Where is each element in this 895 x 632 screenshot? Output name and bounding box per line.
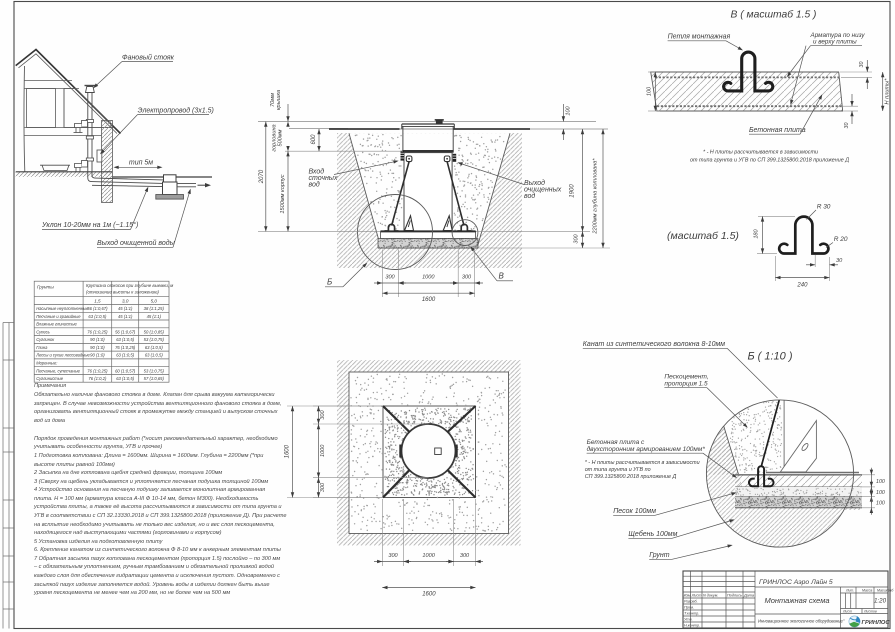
svg-text:Насыпные неуплотненные: Насыпные неуплотненные — [36, 306, 89, 311]
svg-text:R 30: R 30 — [817, 204, 831, 211]
svg-text:от типа грунта и УГВ по: от типа грунта и УГВ по — [585, 467, 651, 473]
svg-text:100: 100 — [566, 105, 572, 115]
svg-text:76 (1:0,25): 76 (1:0,25) — [87, 368, 108, 373]
svg-text:600: 600 — [311, 134, 317, 145]
svg-text:180: 180 — [754, 228, 760, 238]
svg-text:Суглинок: Суглинок — [36, 337, 55, 342]
svg-text:В: В — [499, 272, 505, 281]
svg-text:300: 300 — [460, 553, 470, 559]
svg-text:300: 300 — [320, 409, 326, 419]
svg-text:45 (1:1): 45 (1:1) — [118, 306, 133, 311]
svg-text:N докум.: N докум. — [703, 594, 718, 598]
svg-text:1600: 1600 — [422, 297, 436, 303]
svg-text:двухсторонним армированием 100: двухсторонним армированием 100мм* — [587, 445, 706, 453]
svg-text:Влажные глинистые: Влажные глинистые — [36, 322, 77, 327]
svg-text:1:20: 1:20 — [874, 598, 887, 605]
svg-text:ГРИНЛОС: ГРИНЛОС — [862, 620, 891, 626]
svg-text:30: 30 — [844, 123, 850, 129]
svg-text:Песчаные, супесчаные: Песчаные, супесчаные — [36, 368, 80, 373]
svg-text:1500мм корпус: 1500мм корпус — [280, 174, 286, 213]
svg-text:Песчаные и гравийные: Песчаные и гравийные — [36, 314, 81, 319]
svg-text:Песок 100мм: Песок 100мм — [613, 508, 656, 515]
svg-text:Т.контр.: Т.контр. — [684, 612, 699, 616]
svg-text:45 (1:1): 45 (1:1) — [118, 314, 133, 319]
svg-text:300: 300 — [462, 274, 472, 280]
svg-text:100: 100 — [876, 490, 885, 496]
svg-text:Щебень 100мм: Щебень 100мм — [628, 530, 677, 538]
svg-text:38 (1:1,25): 38 (1:1,25) — [144, 306, 165, 311]
svg-text:вод: вод — [309, 181, 320, 189]
svg-text:Монтажная схема: Монтажная схема — [764, 596, 829, 605]
svg-text:300: 300 — [574, 233, 580, 243]
svg-text:100: 100 — [876, 501, 885, 507]
svg-text:30: 30 — [836, 258, 843, 264]
svg-text:300: 300 — [388, 553, 398, 559]
svg-text:* - Н плиты рассчитывается в: * - Н плиты рассчитывается в зависимости — [703, 150, 818, 156]
svg-text:* - Н плиты рассчитывается в з: * - Н плиты рассчитывается в зависимости — [585, 460, 700, 466]
svg-text:1600: 1600 — [422, 592, 436, 598]
svg-text:76 (1:0,2): 76 (1:0,2) — [88, 376, 107, 381]
svg-text:Моренные:: Моренные: — [36, 360, 57, 365]
svg-text:76 (1:0,25): 76 (1:0,25) — [115, 345, 136, 350]
svg-text:и верху плиты: и верху плиты — [813, 39, 857, 46]
svg-text:Изм.Лист: Изм.Лист — [684, 594, 702, 598]
svg-text:Крутизна откосов при глубине в: Крутизна откосов при глубине выемки, м — [86, 283, 173, 288]
svg-text:Листов: Листов — [863, 610, 877, 614]
svg-text:Суглинистые: Суглинистые — [36, 376, 64, 381]
svg-text:Бетонная плита с: Бетонная плита с — [587, 439, 645, 446]
svg-text:Грунт: Грунт — [649, 552, 670, 559]
svg-text:63 (1:0,5): 63 (1:0,5) — [145, 345, 164, 350]
svg-text:90 (1:0): 90 (1:0) — [90, 345, 105, 350]
svg-text:56 (1:0,67): 56 (1:0,67) — [115, 329, 136, 334]
svg-text:500мм: 500мм — [277, 129, 283, 146]
svg-text:63 (1:0,5): 63 (1:0,5) — [145, 353, 164, 358]
svg-text:53 (1:0,75): 53 (1:0,75) — [144, 368, 165, 373]
svg-text:63 (1:0,5): 63 (1:0,5) — [116, 337, 135, 342]
svg-text:Выход очищенной воды: Выход очищенной воды — [97, 239, 176, 247]
svg-text:240: 240 — [796, 283, 808, 289]
svg-text:1000: 1000 — [320, 444, 326, 457]
svg-text:Масштаб: Масштаб — [877, 589, 894, 593]
svg-text:63 (1:0,5): 63 (1:0,5) — [116, 353, 135, 358]
svg-text:1000: 1000 — [422, 274, 435, 280]
svg-text:Б: Б — [327, 278, 332, 287]
svg-text:В ( масштаб 1.5 ): В ( масштаб 1.5 ) — [731, 9, 817, 21]
svg-text:Лист: Лист — [842, 610, 852, 614]
svg-text:Грунты: Грунты — [37, 285, 54, 290]
svg-text:Глина: Глина — [36, 345, 48, 350]
svg-text:56 (1:0,67): 56 (1:0,67) — [87, 306, 108, 311]
svg-text:Н.контр.: Н.контр. — [684, 624, 700, 628]
svg-text:100: 100 — [876, 479, 885, 485]
svg-text:1,5: 1,5 — [94, 299, 101, 304]
svg-text:2070: 2070 — [259, 169, 265, 184]
svg-text:30: 30 — [859, 62, 865, 68]
svg-text:90 (1:0): 90 (1:0) — [90, 353, 105, 358]
svg-text:ГРИНЛОС Аэро Лайн 5: ГРИНЛОС Аэро Лайн 5 — [759, 578, 833, 586]
svg-text:Б ( 1:10 ): Б ( 1:10 ) — [747, 351, 792, 363]
svg-text:Н плиты*: Н плиты* — [885, 78, 891, 105]
svg-text:от типа грунта и УГВ по СП 399: от типа грунта и УГВ по СП 399.1325800.2… — [690, 158, 849, 164]
svg-text:СП 399.1325800.2018 приложение: СП 399.1325800.2018 приложение Д — [585, 474, 677, 480]
svg-text:45 (1:1): 45 (1:1) — [147, 314, 162, 319]
svg-text:(отношение высоты к заложению): (отношение высоты к заложению) — [86, 290, 159, 295]
svg-text:Бетонная плита: Бетонная плита — [749, 127, 806, 134]
svg-text:76 (1:0,25): 76 (1:0,25) — [87, 329, 108, 334]
svg-text:Пров.: Пров. — [684, 606, 694, 610]
svg-text:Пескоцемент,: Пескоцемент, — [664, 374, 708, 381]
svg-text:Инновационное экологичное обор: Инновационное экологичное оборудование" — [758, 619, 845, 624]
svg-text:Лессы и сухие лессовидные: Лессы и сухие лессовидные — [35, 353, 90, 358]
svg-text:Подпись: Подпись — [727, 594, 742, 598]
svg-text:53 (1:0,75): 53 (1:0,75) — [144, 337, 165, 342]
svg-text:Дата: Дата — [743, 594, 754, 598]
svg-text:63 (1:0,5): 63 (1:0,5) — [88, 314, 107, 319]
svg-text:100: 100 — [647, 86, 653, 96]
svg-text:крышка: крышка — [276, 90, 282, 110]
svg-text:300: 300 — [385, 274, 395, 280]
svg-text:Супесь: Супесь — [36, 329, 50, 334]
svg-text:Фановый стояк: Фановый стояк — [122, 54, 175, 62]
svg-text:300: 300 — [320, 482, 326, 492]
svg-text:1000: 1000 — [422, 553, 435, 559]
svg-text:Масса: Масса — [862, 589, 872, 593]
svg-text:R 20: R 20 — [834, 236, 848, 243]
svg-text:60 (1:0,57): 60 (1:0,57) — [115, 368, 136, 373]
svg-text:5,0: 5,0 — [151, 299, 158, 304]
svg-text:Электропровод (3х1.5): Электропровод (3х1.5) — [138, 107, 214, 115]
svg-text:Уклон 10-20мм на 1м (~1.15°): Уклон 10-20мм на 1м (~1.15°) — [41, 221, 138, 229]
svg-text:63 (1:0,5): 63 (1:0,5) — [116, 376, 135, 381]
svg-text:Петля монтажная: Петля монтажная — [668, 34, 731, 41]
svg-text:(масштаб 1.5): (масштаб 1.5) — [667, 230, 739, 242]
svg-text:57 (1:0,65): 57 (1:0,65) — [144, 376, 165, 381]
svg-text:2200мм глубина котлована*: 2200мм глубина котлована* — [593, 158, 599, 235]
svg-text:Утв.: Утв. — [684, 618, 693, 622]
svg-text:Лит.: Лит. — [845, 589, 854, 593]
svg-text:пропорция 1.5: пропорция 1.5 — [664, 381, 708, 388]
svg-text:вод: вод — [524, 192, 535, 200]
svg-text:50 (1:0,85): 50 (1:0,85) — [144, 329, 165, 334]
svg-text:1900: 1900 — [570, 184, 576, 198]
svg-text:Канат из синтетического волокн: Канат из синтетического волокна 8-10мм — [583, 341, 725, 348]
svg-text:тип 5м: тип 5м — [129, 160, 153, 167]
svg-text:3,0: 3,0 — [122, 299, 129, 304]
svg-text:90 (1:0): 90 (1:0) — [90, 337, 105, 342]
svg-text:Разраб.: Разраб. — [684, 600, 698, 604]
